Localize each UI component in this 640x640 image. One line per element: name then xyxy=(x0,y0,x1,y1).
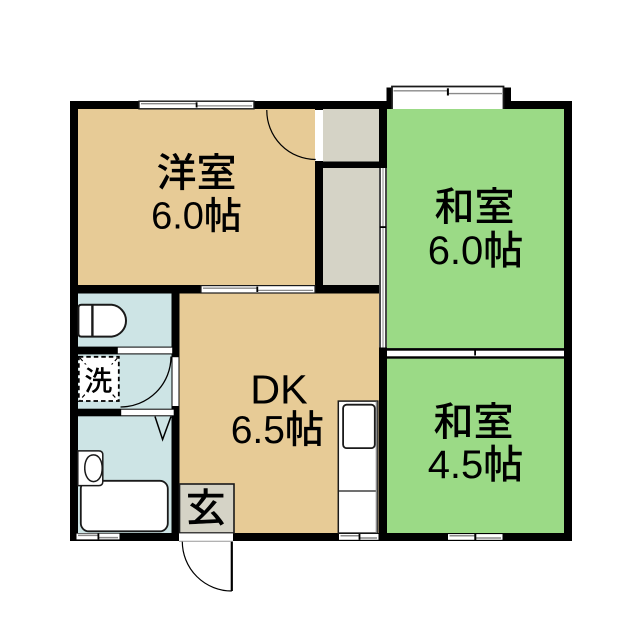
svg-text:6.0: 6.0 xyxy=(428,229,484,273)
svg-text:4.5: 4.5 xyxy=(428,443,484,487)
svg-text:6.5: 6.5 xyxy=(231,409,285,452)
svg-text:6.0: 6.0 xyxy=(151,196,204,238)
svg-text:DK: DK xyxy=(250,366,307,412)
